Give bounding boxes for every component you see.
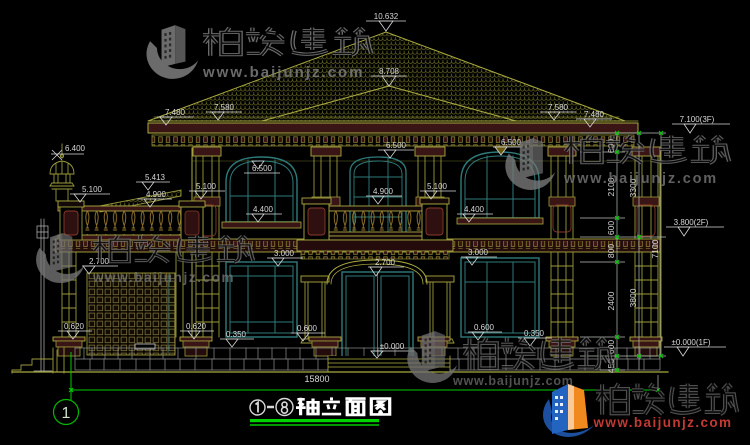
svg-text:3800: 3800 [628, 288, 638, 307]
svg-text:www.baijunjz.com: www.baijunjz.com [452, 374, 574, 388]
svg-text:10.632: 10.632 [374, 12, 399, 21]
svg-text:3.000: 3.000 [468, 248, 489, 257]
svg-text:2400: 2400 [606, 291, 616, 310]
svg-text:www.baijunjz.com: www.baijunjz.com [202, 64, 364, 81]
svg-text:4.400: 4.400 [464, 205, 485, 214]
svg-text:0.600: 0.600 [297, 324, 318, 333]
svg-text:www.baijunjz.com: www.baijunjz.com [92, 270, 235, 285]
svg-text:5.100: 5.100 [196, 182, 217, 191]
svg-text:0.620: 0.620 [186, 322, 207, 331]
svg-text:3.000: 3.000 [274, 249, 295, 258]
svg-text:0.350: 0.350 [226, 330, 247, 339]
svg-text:7.480: 7.480 [165, 108, 186, 117]
svg-text:7.580: 7.580 [548, 103, 569, 112]
svg-text:4.900: 4.900 [146, 190, 167, 199]
svg-text:www.baijunjz.com: www.baijunjz.com [563, 171, 718, 187]
svg-text:3.800(2F): 3.800(2F) [674, 218, 709, 227]
svg-text:5.100: 5.100 [427, 182, 448, 191]
svg-text:7.480: 7.480 [584, 110, 605, 119]
svg-text:5.413: 5.413 [145, 173, 166, 182]
svg-text:7100: 7100 [650, 239, 660, 258]
svg-text:6.400: 6.400 [65, 144, 86, 153]
svg-text:0.600: 0.600 [474, 323, 495, 332]
svg-text:1: 1 [62, 405, 71, 422]
svg-text:0.620: 0.620 [64, 322, 85, 331]
svg-text:800: 800 [606, 244, 616, 258]
svg-text:7.100(3F): 7.100(3F) [680, 115, 715, 124]
svg-text:6.500: 6.500 [501, 138, 522, 147]
svg-text:8.708: 8.708 [379, 67, 400, 76]
svg-text:5.100: 5.100 [82, 185, 103, 194]
svg-text:±0.000(1F): ±0.000(1F) [671, 338, 710, 347]
svg-text:7.580: 7.580 [214, 103, 235, 112]
svg-text:15800: 15800 [304, 374, 329, 384]
svg-text:6.500: 6.500 [386, 141, 407, 150]
svg-text:600: 600 [606, 221, 616, 235]
svg-text:0.350: 0.350 [524, 329, 545, 338]
svg-text:4.400: 4.400 [253, 205, 274, 214]
svg-text:www.baijunjz.com: www.baijunjz.com [593, 415, 733, 430]
svg-text:4.900: 4.900 [373, 187, 394, 196]
svg-text:2.700: 2.700 [375, 258, 396, 267]
svg-text:±0.000: ±0.000 [380, 342, 405, 351]
